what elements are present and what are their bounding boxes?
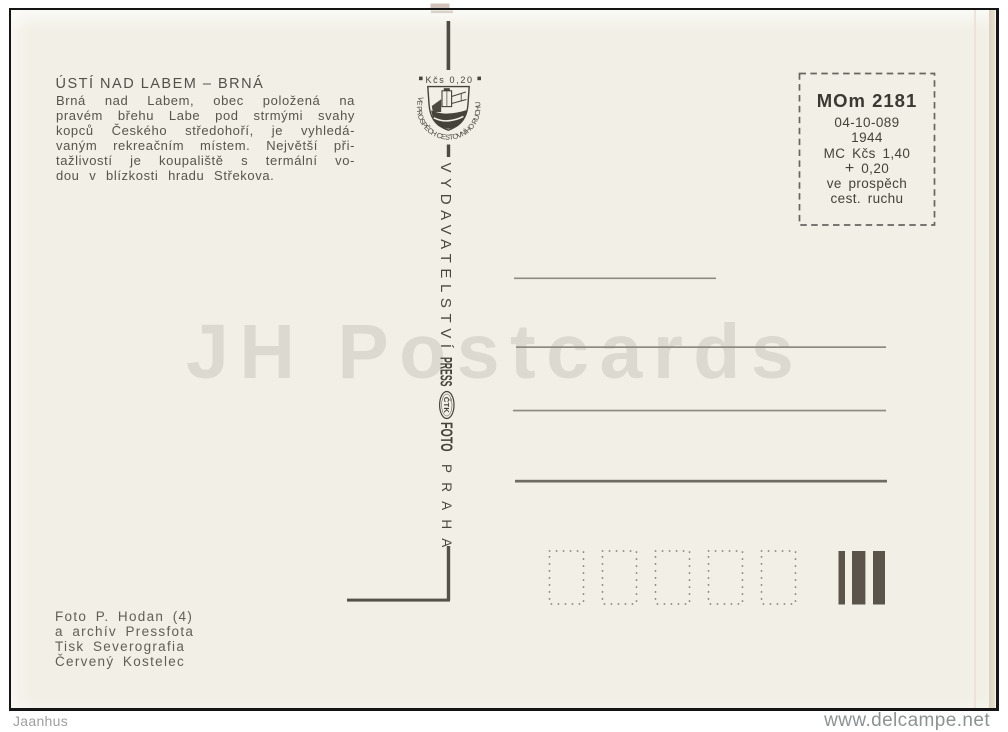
svg-text:Kčs 0,20: Kčs 0,20 — [426, 75, 473, 85]
svg-text:PRESS: PRESS — [437, 357, 456, 386]
svg-text:VYDAVATELSTVÍ: VYDAVATELSTVÍ — [437, 163, 454, 354]
svg-text:FOTO: FOTO — [436, 422, 455, 452]
svg-text:ČTK: ČTK — [442, 397, 451, 414]
svg-text:PRAHA: PRAHA — [439, 464, 454, 557]
